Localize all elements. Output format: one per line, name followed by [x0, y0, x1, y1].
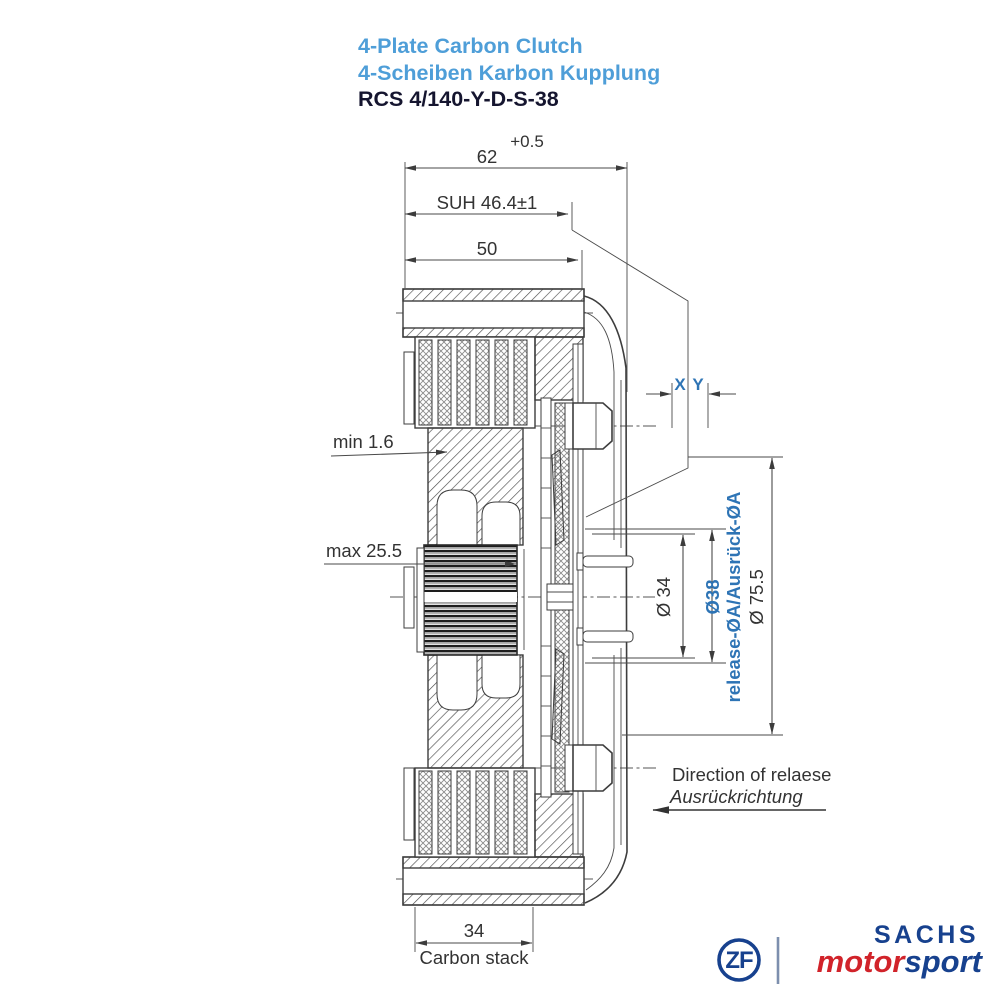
label-release-direction-en: Direction of relaese: [672, 764, 831, 785]
brand-motorsport: motorsport: [817, 944, 984, 979]
title-en: 4-Plate Carbon Clutch: [358, 34, 583, 58]
clutch-drawing-canvas: 4-Plate Carbon Clutch 4-Scheiben Karbon …: [0, 0, 1000, 1000]
cover-bolt-top: [565, 403, 612, 449]
dim-stack-34: 34: [464, 920, 485, 941]
cover-bolt-bottom: [565, 745, 612, 791]
label-max-wear: max 25.5: [326, 540, 402, 561]
dim-dia-75-5-label: Ø 75.5: [746, 569, 767, 625]
release-pins: [577, 553, 633, 645]
technical-drawing-sheet: 4-Plate Carbon Clutch 4-Scheiben Karbon …: [0, 0, 1000, 1000]
drive-tab-bottom: [404, 768, 414, 840]
brand-motor: motor: [817, 944, 907, 979]
dim-50: 50: [477, 238, 498, 259]
clutch-cross-section: [390, 289, 656, 905]
label-min-wear: min 1.6: [333, 431, 394, 452]
release-direction-note: Direction of relaese Ausrückrichtung: [653, 764, 831, 810]
dim-suh: SUH 46.4±1: [437, 192, 538, 213]
label-x: X: [674, 375, 686, 394]
title-block: 4-Plate Carbon Clutch 4-Scheiben Karbon …: [358, 34, 660, 111]
dim-62-tolerance: +0.5: [510, 132, 544, 151]
drive-tab-top: [404, 352, 414, 424]
dim-dia-38-note: release-ØA/Ausrück-ØA: [723, 492, 744, 703]
flywheel-band-top: [403, 289, 584, 337]
brand-sport: sport: [905, 944, 984, 979]
spring-pivot-center: [547, 584, 573, 610]
zf-logo: ZF: [719, 940, 759, 980]
dim-62: 62: [477, 146, 498, 167]
suh-leader: [572, 230, 688, 517]
brand-logo: ZF SACHS motorsport: [719, 921, 984, 984]
label-carbon-stack: Carbon stack: [420, 947, 530, 968]
carbon-stack-top: [404, 337, 535, 428]
hub-flange-top: [428, 428, 523, 545]
label-release-direction-de: Ausrückrichtung: [669, 786, 803, 807]
dim-dia-34-label: Ø 34: [653, 577, 674, 617]
carbon-stack-bottom: [404, 768, 535, 857]
part-number: RCS 4/140-Y-D-S-38: [358, 87, 559, 111]
hub-tab-left: [404, 567, 414, 628]
label-y: Y: [692, 375, 704, 394]
flywheel-band-bottom: [403, 857, 584, 905]
title-de: 4-Scheiben Karbon Kupplung: [358, 61, 660, 85]
diaphragm-spring-assembly: [541, 398, 573, 797]
hub-flange-bottom: [428, 655, 523, 768]
zf-logo-text: ZF: [725, 947, 753, 974]
clutch-cover: [573, 296, 627, 903]
dim-xy: X Y: [646, 375, 736, 428]
dim-carbon-stack: 34 Carbon stack: [415, 907, 533, 968]
dim-dia-38-label: Ø38: [702, 580, 723, 615]
spline-hub: [404, 545, 524, 655]
